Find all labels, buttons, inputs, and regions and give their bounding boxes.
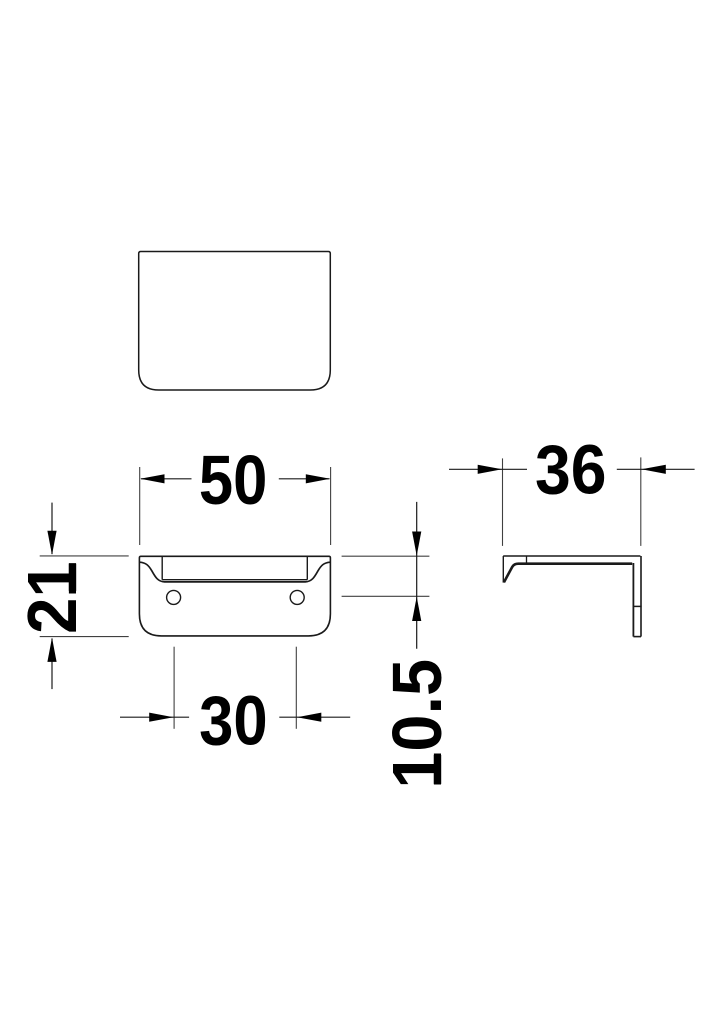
svg-text:10.5: 10.5 [378,659,456,789]
svg-text:30: 30 [199,681,268,759]
svg-text:21: 21 [13,561,91,634]
svg-text:50: 50 [199,441,268,519]
svg-text:36: 36 [535,431,607,509]
